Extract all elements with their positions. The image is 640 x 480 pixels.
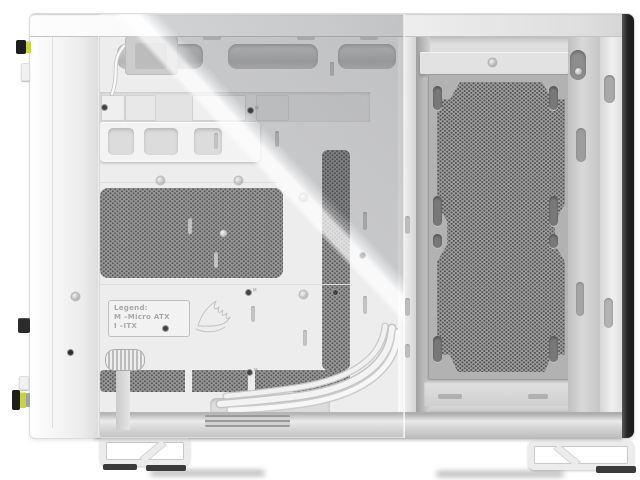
foot-strut [140,440,165,462]
foot-rubber-pad [596,466,636,473]
fan-mount-plate [428,74,574,380]
fan-plate-slot [549,86,558,110]
fan-plate-slot [549,196,558,226]
front-power-button [21,63,30,81]
fan-plate-slot [433,196,442,226]
divider-slot [405,216,410,234]
chamber-right-wall [568,36,600,412]
fan-plate-slot [433,336,442,362]
fan-plate-mesh [437,82,565,372]
chamber-floor [424,380,576,406]
front-io-jack-icon [16,40,26,54]
foot-rubber-pad [103,464,137,470]
fan-plate-slot [433,234,442,248]
spine-seam [52,24,53,428]
fan-plate-slot [549,234,558,248]
screw-head [489,59,496,66]
rear-oval-cutout [576,282,584,316]
floor-slot [438,394,462,399]
fan-plate-slot [433,86,442,110]
front-io-port-icon [18,318,30,333]
front-audio-jack-collar [26,393,30,407]
divider-slot [405,344,410,358]
front-io-jack-ring [26,41,31,53]
front-io-bump [19,376,29,390]
rear-frame [600,36,622,426]
fan-chamber [416,36,600,412]
fan-plate-slot [549,336,558,362]
tempered-glass-panel [98,14,405,438]
screw-head [72,293,79,300]
screw-head [575,68,582,75]
standoff-marker [68,350,73,355]
case-foot-left [100,436,190,466]
rear-frame-oval [604,298,613,328]
rear-oval-cutout [576,128,586,162]
front-audio-jack-icon [12,390,20,410]
rear-frame-oval [604,75,615,103]
foot-strut [555,444,580,466]
case-body: Legend: M –Micro ATX I –ITX [30,14,634,438]
front-panel-spine [30,14,100,438]
rear-oval-cutout [570,50,586,80]
product-photo-stage: Legend: M –Micro ATX I –ITX [0,0,640,480]
foot-rubber-pad [146,465,186,471]
rear-dark-edge [622,14,634,438]
floor-slot [528,394,548,399]
foot-shadow-right [436,471,564,477]
divider-slot [405,298,410,316]
